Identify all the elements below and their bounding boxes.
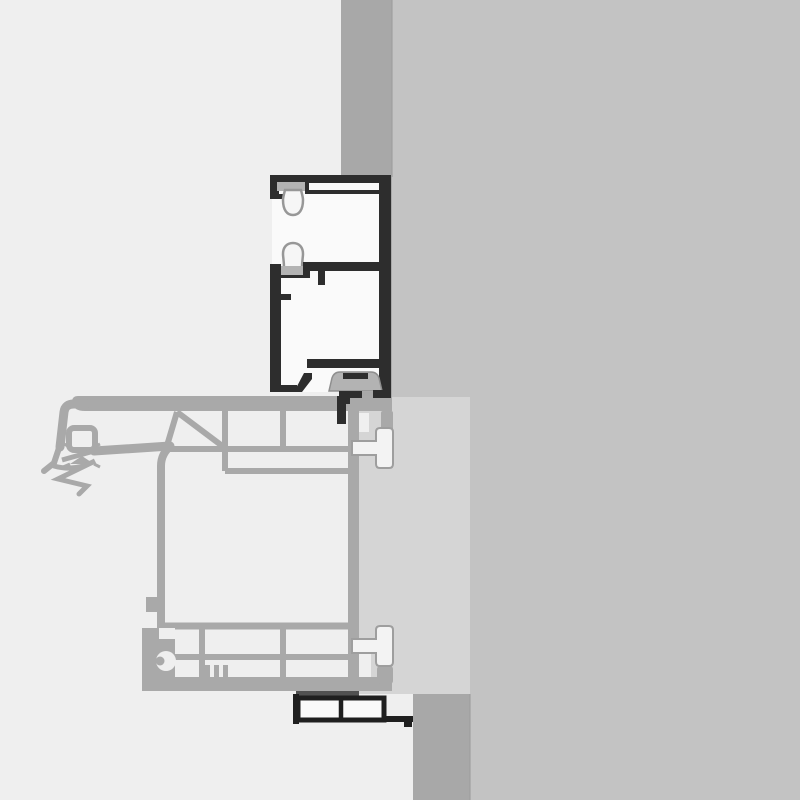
technical-section-drawing [0,0,800,800]
gasket-bulb-middle [283,243,303,268]
frame-mid-bar-lip [303,262,310,278]
frame-mid-bar [303,262,391,271]
frame-top-edge [270,175,391,183]
sash-arm [94,446,170,451]
glazing-clip-notch [343,373,368,379]
frame-bottom-left-edge [270,385,297,392]
sash-comb-finger [223,665,228,678]
sash-right-slot-top [359,413,369,432]
euro-channel [309,183,375,190]
sash-right-slot-bottom [359,653,371,677]
trim-left-hatch [293,694,299,724]
wall-seam-bottom [469,694,471,800]
channel-left-wall [305,182,309,191]
sash-left-nub [146,597,163,612]
sash-bottom-bar [142,677,392,691]
gap-below-panel [392,694,413,800]
wall-seam-top [391,0,393,177]
window-installation-section-svg [0,0,800,800]
frame-inner-bottom-bar [307,359,391,368]
frame-left-wall [270,264,281,392]
frame-profile [270,175,391,424]
sash-screw-boss [142,628,176,678]
sash-comb-finger [214,665,219,678]
sash-outer-tab [377,666,393,684]
boss-core [156,657,165,666]
frame-stub [270,294,291,300]
channel-underline [305,190,381,194]
gasket-bulb-top [283,190,303,215]
wall-reveal-band-bottom [413,694,470,800]
boss-notch [159,628,175,639]
frame-bottom-right-corner [373,390,391,398]
frame-divider [318,271,325,285]
trim-end-tick [404,720,412,727]
sash-comb-finger [205,665,210,678]
